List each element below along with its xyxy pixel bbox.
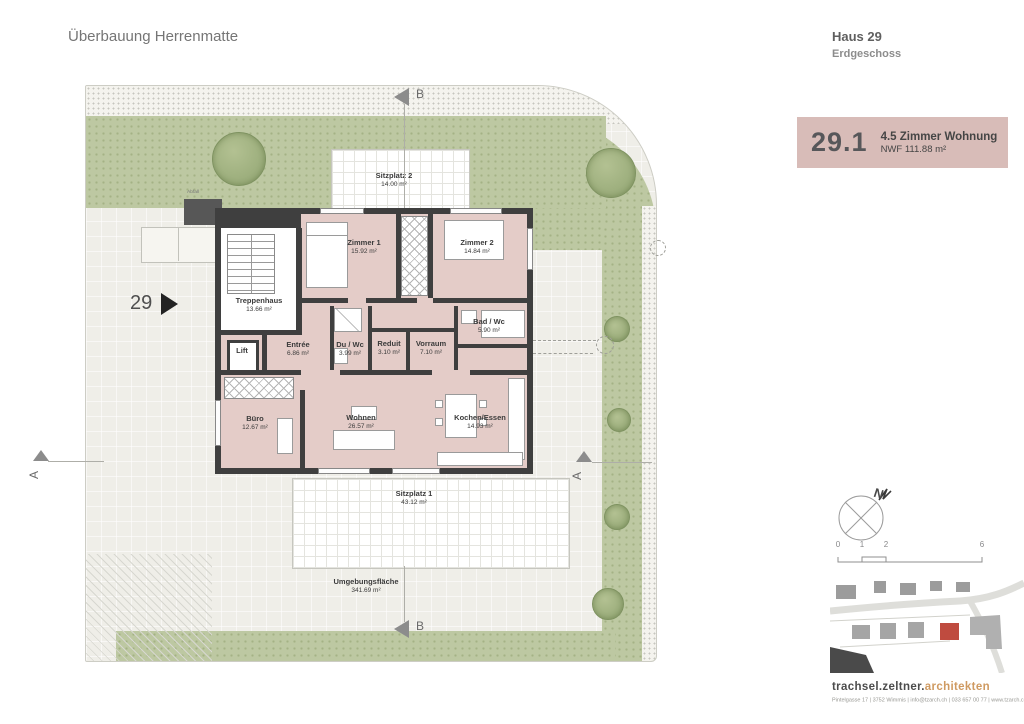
unit-area: NWF 111.88 m² bbox=[881, 144, 998, 155]
room-lift bbox=[227, 340, 259, 374]
site-map bbox=[830, 577, 1024, 673]
sitzplatz1-label: Sitzplatz 143.12 m² bbox=[396, 489, 433, 507]
highlighted-building bbox=[940, 623, 959, 640]
closet-row bbox=[224, 377, 294, 399]
staircase bbox=[227, 234, 275, 294]
chair bbox=[435, 400, 443, 408]
parking-divider bbox=[178, 227, 179, 261]
wall bbox=[454, 344, 527, 348]
architect-logo: trachsel.zeltner.architekten bbox=[832, 681, 990, 693]
window bbox=[450, 208, 502, 214]
room-label-zimmer1: Zimmer 115.92 m² bbox=[347, 238, 380, 256]
wardrobe-column bbox=[401, 216, 428, 296]
unit-type: 4.5 Zimmer Wohnung bbox=[881, 131, 998, 143]
section-letter-a-left: A bbox=[27, 471, 41, 479]
wall bbox=[221, 214, 301, 228]
chair bbox=[479, 400, 487, 408]
window bbox=[215, 400, 221, 446]
scale-tick: 6 bbox=[980, 540, 984, 549]
brand-primary: trachsel.zeltner. bbox=[832, 681, 925, 693]
sofa bbox=[333, 430, 395, 450]
door-opening bbox=[417, 298, 433, 303]
bed-pillow bbox=[306, 222, 348, 236]
entrance-arrow-icon bbox=[161, 293, 178, 315]
scale-tick: 0 bbox=[836, 540, 840, 549]
architect-address: Pintelgasse 17 | 3752 Wimmis | info@tzar… bbox=[832, 697, 1024, 703]
scale-tick: 1 bbox=[860, 540, 864, 549]
wall bbox=[454, 306, 458, 370]
room-label-badwc: Bad / Wc5.90 m² bbox=[473, 317, 505, 335]
scale-tick: 2 bbox=[884, 540, 888, 549]
project-title: Überbauung Herrenmatte bbox=[68, 28, 238, 45]
shrub-icon bbox=[607, 408, 631, 432]
room-label-duwc: Du / Wc3.99 m² bbox=[336, 340, 364, 358]
section-letter-a-right: A bbox=[570, 472, 584, 480]
section-marker-icon bbox=[33, 450, 49, 461]
window bbox=[527, 228, 533, 270]
chair bbox=[435, 418, 443, 426]
utility-line bbox=[533, 340, 596, 341]
tree-icon bbox=[212, 132, 266, 186]
wall bbox=[300, 390, 305, 468]
brand-secondary: architekten bbox=[925, 681, 990, 693]
survey-circle-icon bbox=[650, 240, 666, 256]
room-label-wohnen: Wohnen26.57 m² bbox=[346, 413, 375, 431]
room-label-buero: Büro12.67 m² bbox=[242, 414, 268, 432]
shower bbox=[334, 308, 362, 332]
kitchen-counter bbox=[437, 452, 523, 466]
hatched-zone bbox=[86, 554, 212, 661]
wall bbox=[340, 370, 432, 375]
wall bbox=[470, 370, 527, 375]
room-label-vorraum: Vorraum7.10 m² bbox=[416, 339, 446, 357]
shrub-icon bbox=[604, 504, 630, 530]
umgebungsflaeche-label: Umgebungsfläche341.69 m² bbox=[333, 577, 398, 595]
wall bbox=[368, 328, 458, 332]
window bbox=[320, 208, 364, 214]
unit-badge: 29.1 4.5 Zimmer Wohnung NWF 111.88 m² bbox=[797, 117, 1008, 168]
room-label-zimmer2: Zimmer 214.84 m² bbox=[460, 238, 493, 256]
room-label-kochen: Kochen/Essen14.93 m² bbox=[454, 413, 506, 431]
section-letter-b-bottom: B bbox=[416, 619, 424, 633]
gravel-path-right bbox=[642, 206, 656, 661]
room-label-lift: Lift bbox=[236, 346, 248, 356]
sitzplatz2-label: Sitzplatz 214.00 m² bbox=[376, 171, 413, 189]
wall bbox=[262, 335, 267, 375]
wall bbox=[406, 332, 410, 370]
utility-line bbox=[533, 353, 593, 354]
abfall-label: Abfall bbox=[187, 189, 199, 194]
section-line-a bbox=[48, 461, 104, 462]
floor-label: Erdgeschoss bbox=[832, 48, 901, 60]
section-line-a bbox=[592, 462, 652, 463]
wall bbox=[368, 306, 372, 370]
window bbox=[318, 468, 370, 474]
house-label: Haus 29 bbox=[832, 29, 882, 44]
utility-manhole-icon bbox=[596, 336, 614, 354]
room-label-reduit: Reduit3.10 m² bbox=[377, 339, 400, 357]
parking-area bbox=[141, 227, 217, 263]
unit-number: 29.1 bbox=[811, 127, 868, 158]
entrance-number: 29 bbox=[130, 292, 152, 315]
scale-bar: 0 1 2 6 bbox=[836, 540, 996, 566]
section-letter-b-top: B bbox=[416, 87, 424, 101]
section-marker-icon bbox=[576, 451, 592, 462]
door-opening bbox=[348, 298, 366, 303]
wall bbox=[221, 370, 301, 375]
desk bbox=[277, 418, 293, 454]
section-line-b bbox=[404, 566, 405, 622]
room-label-treppenhaus: Treppenhaus13.66 m² bbox=[236, 296, 283, 314]
tree-icon bbox=[586, 148, 636, 198]
wall bbox=[296, 228, 302, 335]
section-line-b bbox=[404, 104, 405, 208]
room-label-entree: Entrée6.86 m² bbox=[286, 340, 309, 358]
section-marker-icon bbox=[394, 88, 409, 106]
floor-plan-sheet: Überbauung Herrenmatte Haus 29 Erdgescho… bbox=[0, 0, 1024, 724]
wall bbox=[428, 214, 433, 300]
kitchen-counter bbox=[508, 378, 525, 460]
wall bbox=[302, 298, 527, 303]
window bbox=[392, 468, 440, 474]
section-marker-icon bbox=[394, 620, 409, 638]
shrub-icon bbox=[592, 588, 624, 620]
